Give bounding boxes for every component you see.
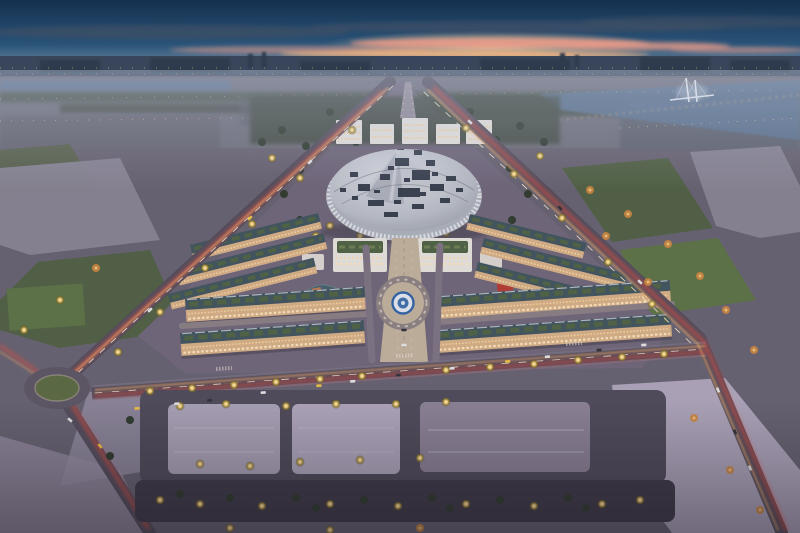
bottom-vignette [0, 400, 800, 533]
aerial-render-scene [0, 0, 800, 533]
